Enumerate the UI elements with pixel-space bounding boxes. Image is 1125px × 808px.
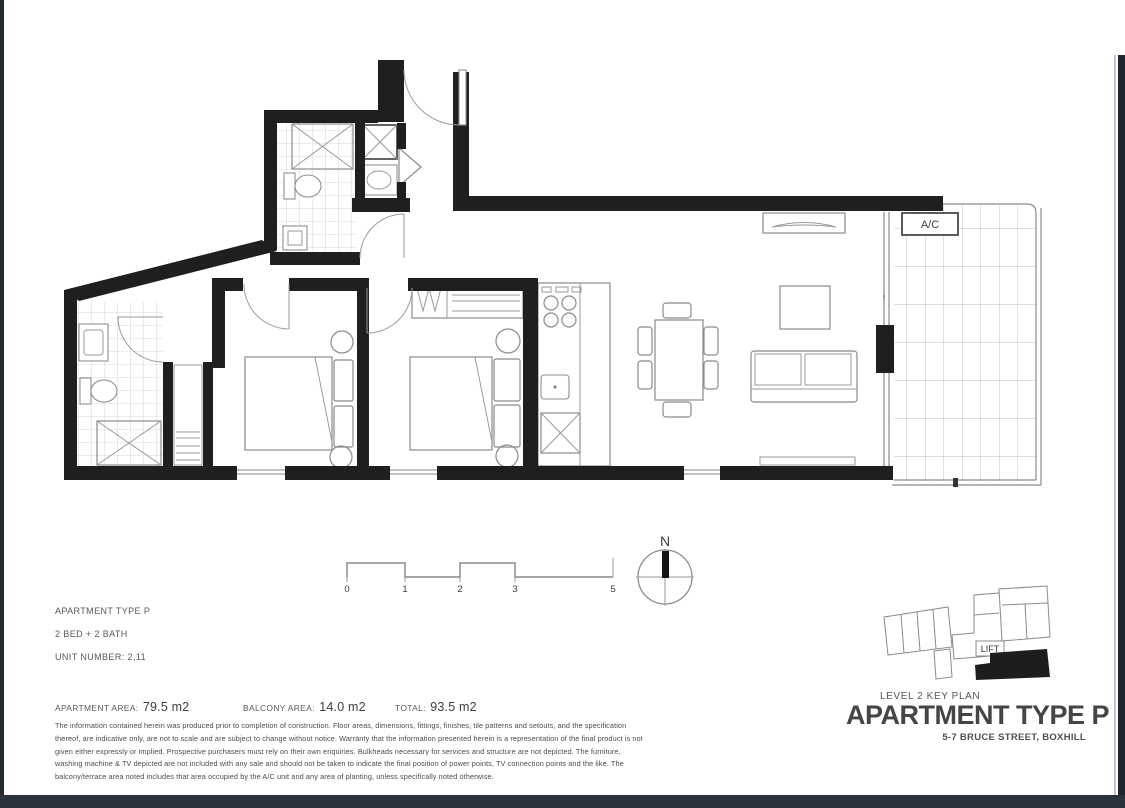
apartment-info-block: APARTMENT TYPE P 2 BED + 2 BATH UNIT NUM…: [55, 600, 150, 669]
apartment-type-label: APARTMENT TYPE P: [55, 600, 150, 623]
kitchen: [538, 283, 610, 466]
scale-tick-5: 5: [610, 584, 615, 595]
unit-number-label: UNIT NUMBER: 2,11: [55, 646, 150, 669]
scale-bar: 0 1 2 3 5: [344, 558, 615, 595]
disclaimer-text: The information contained herein was pro…: [55, 720, 700, 784]
balcony-area-label: BALCONY AREA:: [243, 703, 315, 713]
living-dining-furniture: [638, 213, 857, 417]
total-area-value: 93.5 m2: [430, 700, 477, 714]
scale-tick-2: 2: [457, 584, 462, 595]
total-area-label: TOTAL:: [395, 703, 426, 713]
disclaimer-line-3: given either expressly or implied. Prosp…: [55, 746, 700, 759]
apartment-area-value: 79.5 m2: [143, 700, 190, 714]
apartment-area-label: APARTMENT AREA:: [55, 703, 138, 713]
title-block: APARTMENT TYPE P 5-7 BRUCE STREET, BOXHI…: [846, 700, 1090, 743]
disclaimer-line-1: The information contained herein was pro…: [55, 720, 700, 733]
balcony-area-value: 14.0 m2: [319, 700, 366, 714]
north-arrow: N: [636, 533, 694, 606]
scale-tick-1: 1: [402, 584, 407, 595]
bed-bath-label: 2 BED + 2 BATH: [55, 623, 150, 646]
scale-tick-0: 0: [344, 584, 349, 595]
disclaimer-line-4: washing machine & TV depicted are not in…: [55, 758, 700, 771]
disclaimer-line-2: thereof, are indicative only, are not to…: [55, 733, 700, 746]
laundry-closet: [174, 365, 202, 465]
balcony-floor: [894, 205, 1036, 481]
area-summary-row: APARTMENT AREA: 79.5 m2 BALCONY AREA: 14…: [55, 698, 715, 716]
sheet-subtitle: 5-7 BRUCE STREET, BOXHILL: [846, 732, 1090, 743]
sheet-title: APARTMENT TYPE P: [846, 700, 1090, 731]
door-arrow-glyph: ↑: [882, 292, 887, 302]
disclaimer-line-5: balcony/terrace area noted includes that…: [55, 771, 700, 784]
page-edge-bottom: [0, 795, 1125, 808]
bedroom-1-furniture: [245, 331, 353, 468]
floor-plan-sheet: A/C ↑ 0 1 2 3 5 N: [0, 0, 1125, 808]
ac-label-text: A/C: [921, 219, 939, 231]
bedroom-2-furniture: [410, 281, 523, 467]
entry-closet-and-vanity: [362, 125, 421, 195]
lift-label: LIFT: [981, 644, 1000, 654]
walls: [64, 60, 943, 480]
floor-plan-drawing: A/C ↑ 0 1 2 3 5 N: [0, 0, 1125, 620]
north-label: N: [660, 533, 670, 549]
scale-tick-3: 3: [512, 584, 517, 595]
